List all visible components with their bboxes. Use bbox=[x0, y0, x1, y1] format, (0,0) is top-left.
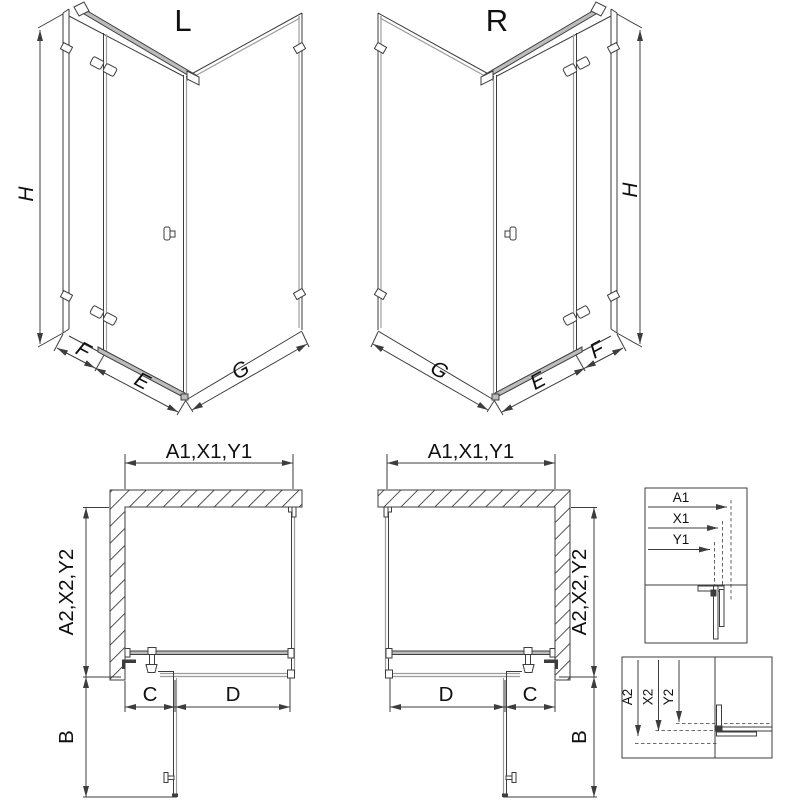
dim-label-depth-left: A2,X2,Y2 bbox=[55, 549, 78, 636]
dim-label-d-left: D bbox=[226, 683, 241, 706]
dim-label-side-left: G bbox=[228, 356, 254, 384]
detail-label-x2: X2 bbox=[641, 689, 656, 706]
dim-label-width-left: A1,X1,Y1 bbox=[166, 440, 253, 463]
dim-label-depth-right: A2,X2,Y2 bbox=[568, 549, 591, 636]
dim-label-d-right: D bbox=[439, 683, 454, 706]
dim-label-side-right: G bbox=[426, 356, 452, 384]
dim-label-door-right: E bbox=[526, 367, 550, 394]
detail-label-x1: X1 bbox=[673, 511, 690, 526]
dim-label-height-right: H bbox=[619, 182, 642, 198]
technical-drawing-page: L H F E G R H F E G A1,X1,Y1 A2,X2,Y2 C … bbox=[0, 0, 800, 800]
shower-enclosure-drawing: L H F E G R H F E G A1,X1,Y1 A2,X2,Y2 C … bbox=[0, 0, 800, 800]
dim-label-b-left: B bbox=[55, 730, 78, 744]
detail-label-y2: Y2 bbox=[661, 689, 676, 706]
dim-label-width-right: A1,X1,Y1 bbox=[428, 440, 515, 463]
plan-view-left: A1,X1,Y1 A2,X2,Y2 C D B bbox=[55, 440, 302, 797]
dim-label-panel-right: F bbox=[586, 337, 609, 364]
iso-view-right: R H F E G bbox=[371, 2, 642, 415]
detail-box-depth: A2 X2 Y2 bbox=[620, 657, 772, 758]
detail-label-y1: Y1 bbox=[673, 532, 690, 547]
detail-box-width: A1 X1 Y1 bbox=[645, 488, 747, 643]
detail-label-a1: A1 bbox=[673, 490, 690, 505]
detail-label-a2: A2 bbox=[620, 689, 635, 706]
dim-label-door-left: E bbox=[130, 368, 154, 395]
variant-label-right: R bbox=[486, 3, 508, 38]
plan-view-right: A1,X1,Y1 A2,X2,Y2 D C B bbox=[378, 440, 597, 797]
dim-label-panel-left: F bbox=[72, 337, 95, 364]
dim-label-c-left: C bbox=[143, 683, 158, 706]
variant-label-left: L bbox=[174, 3, 191, 38]
dim-label-b-right: B bbox=[568, 730, 591, 744]
iso-view-left: L H F E G bbox=[15, 2, 309, 415]
dim-label-c-right: C bbox=[523, 683, 538, 706]
dim-label-height-left: H bbox=[15, 186, 38, 202]
